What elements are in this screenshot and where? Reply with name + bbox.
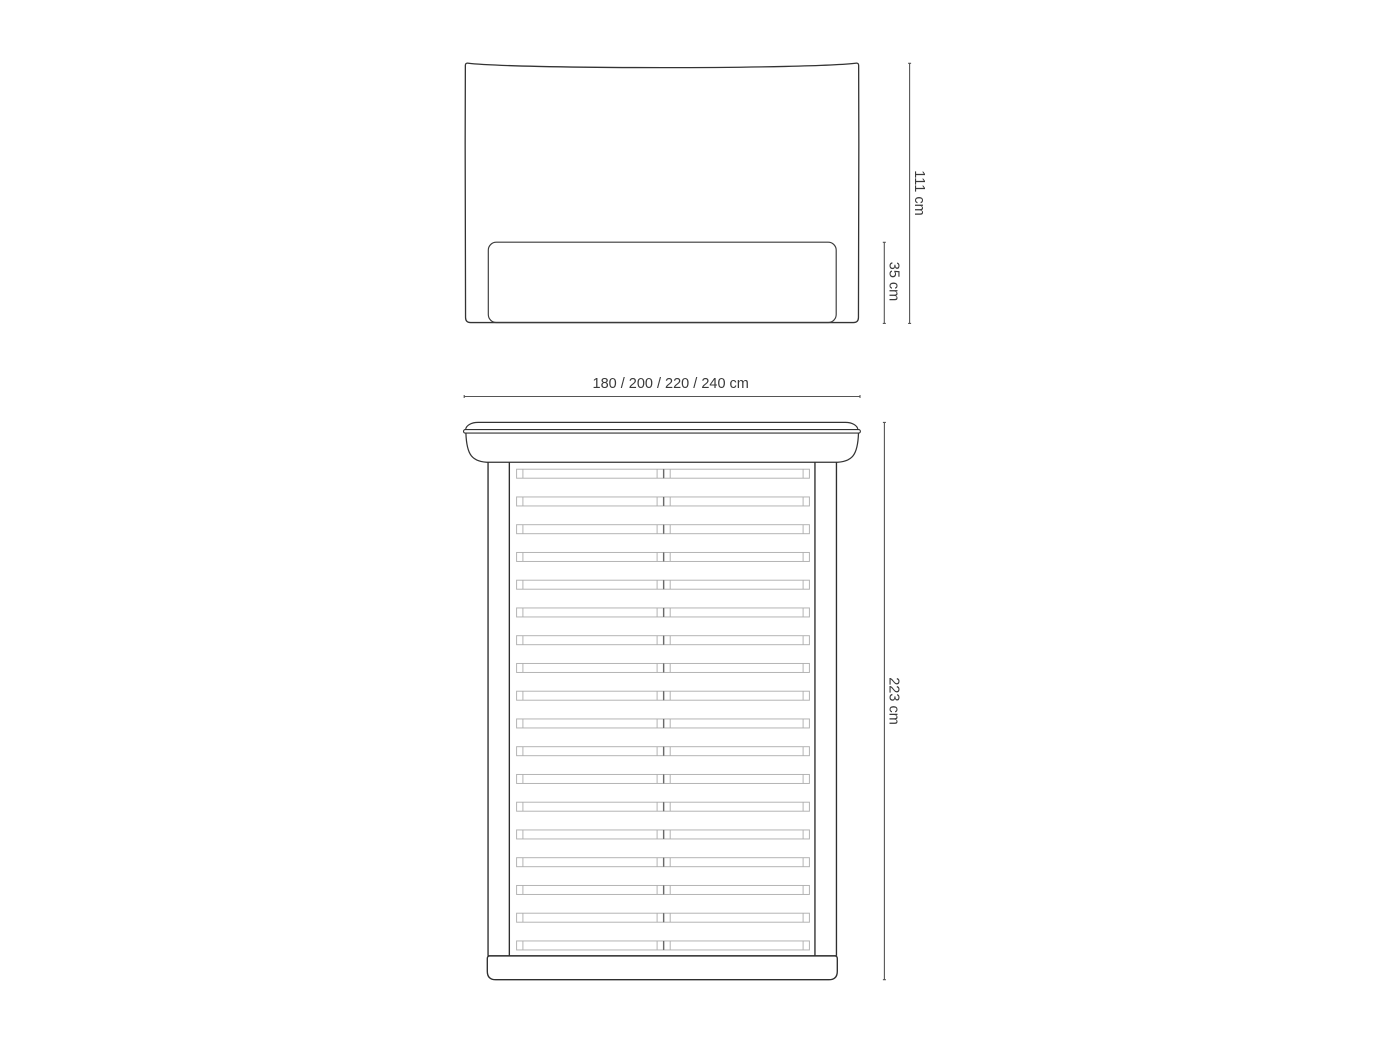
- svg-text:180 / 200 / 220 / 240 cm: 180 / 200 / 220 / 240 cm: [593, 376, 749, 392]
- svg-text:111 cm: 111 cm: [911, 170, 927, 215]
- svg-text:35 cm: 35 cm: [886, 262, 902, 302]
- svg-text:223 cm: 223 cm: [886, 677, 902, 725]
